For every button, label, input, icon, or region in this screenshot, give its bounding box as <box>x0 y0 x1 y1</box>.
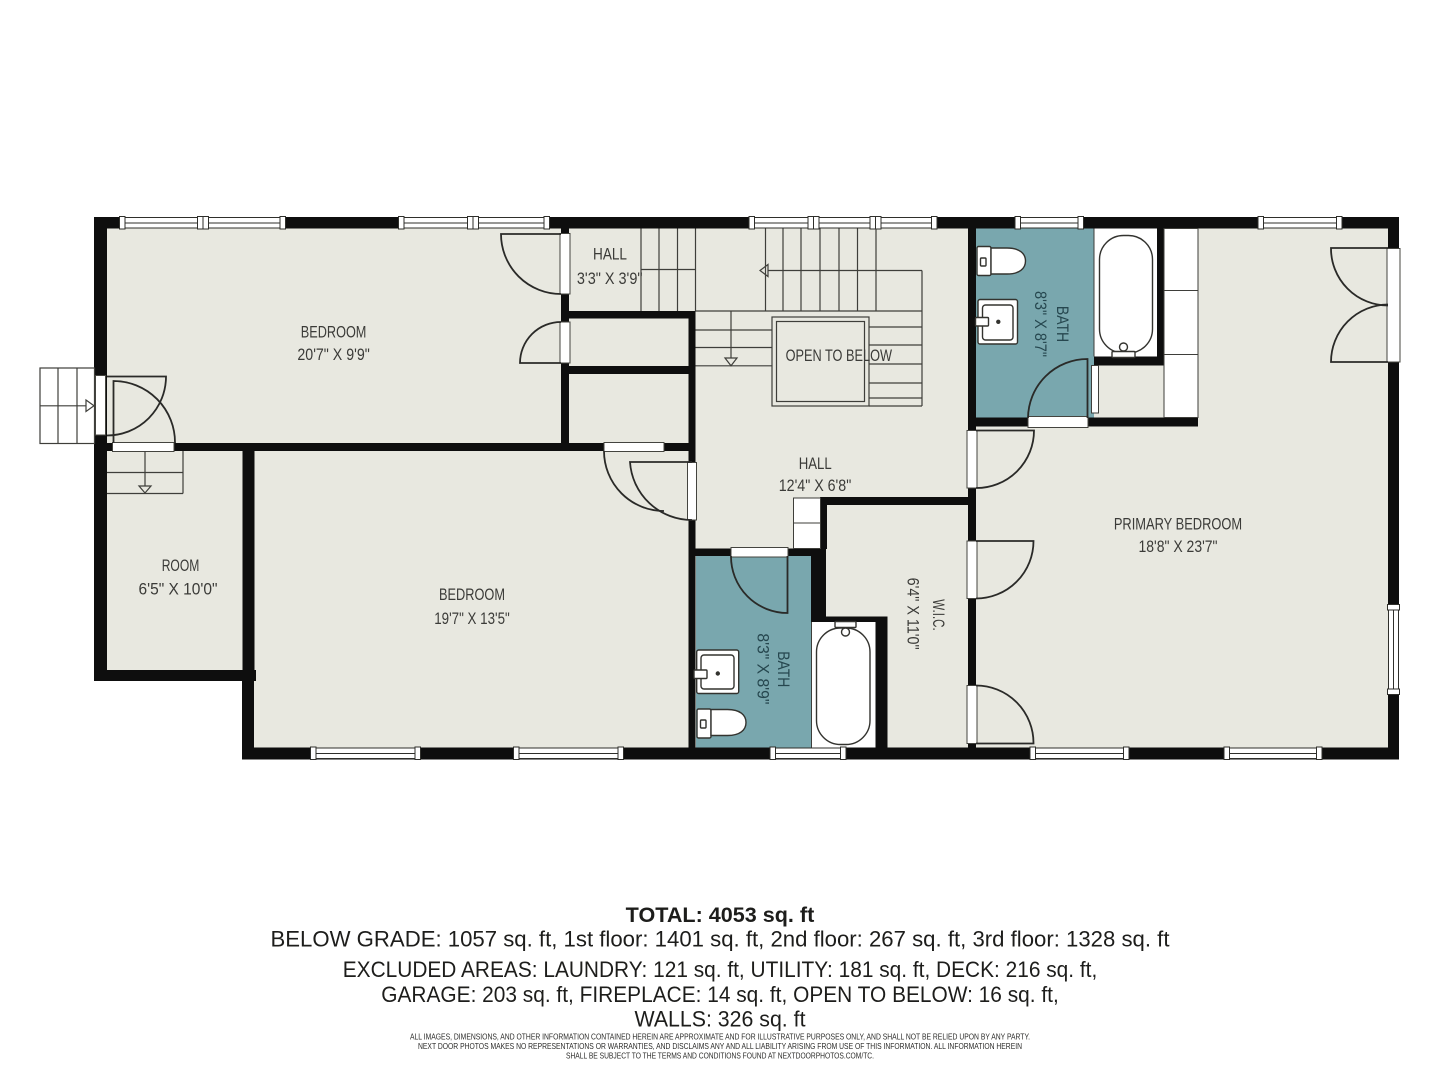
svg-text:W.I.C.: W.I.C. <box>929 599 947 631</box>
svg-text:20'7" X 9'9": 20'7" X 9'9" <box>297 346 370 364</box>
svg-text:WALLS: 326 sq. ft: WALLS: 326 sq. ft <box>635 1007 806 1032</box>
svg-text:BEDROOM: BEDROOM <box>439 586 505 604</box>
svg-text:PRIMARY BEDROOM: PRIMARY BEDROOM <box>1114 516 1242 534</box>
svg-text:8'3" X 8'7": 8'3" X 8'7" <box>1031 291 1049 357</box>
svg-text:BATH: BATH <box>1053 306 1071 342</box>
svg-text:BATH: BATH <box>774 651 792 687</box>
svg-text:12'4" X 6'8": 12'4" X 6'8" <box>779 477 852 495</box>
svg-text:ROOM: ROOM <box>162 557 200 575</box>
svg-text:NEXT DOOR PHOTOS MAKES NO REPR: NEXT DOOR PHOTOS MAKES NO REPRESENTATION… <box>418 1042 1022 1051</box>
svg-text:OPEN TO BELOW: OPEN TO BELOW <box>786 347 893 365</box>
svg-text:8'3" X 8'9": 8'3" X 8'9" <box>754 633 772 704</box>
svg-text:EXCLUDED AREAS: LAUNDRY: 121 s: EXCLUDED AREAS: LAUNDRY: 121 sq. ft, UTI… <box>343 957 1098 982</box>
svg-text:19'7" X 13'5": 19'7" X 13'5" <box>434 610 510 628</box>
svg-text:6'4" X 11'0": 6'4" X 11'0" <box>904 578 922 650</box>
svg-text:6'5" X 10'0": 6'5" X 10'0" <box>139 581 218 599</box>
svg-text:SHALL BE SUBJECT TO THE TERMS: SHALL BE SUBJECT TO THE TERMS AND CONDIT… <box>566 1052 874 1061</box>
svg-text:3'3" X 3'9": 3'3" X 3'9" <box>577 270 643 288</box>
svg-text:GARAGE: 203 sq. ft, FIREPLACE:: GARAGE: 203 sq. ft, FIREPLACE: 14 sq. ft… <box>381 982 1059 1007</box>
svg-text:BEDROOM: BEDROOM <box>301 324 367 342</box>
svg-text:ALL IMAGES, DIMENSIONS, AND OT: ALL IMAGES, DIMENSIONS, AND OTHER INFORM… <box>410 1033 1030 1042</box>
svg-text:TOTAL: 4053 sq. ft: TOTAL: 4053 sq. ft <box>626 903 815 927</box>
svg-text:18'8" X 23'7": 18'8" X 23'7" <box>1139 538 1218 556</box>
svg-text:HALL: HALL <box>593 246 627 264</box>
svg-text:BELOW GRADE: 1057 sq. ft, 1st: BELOW GRADE: 1057 sq. ft, 1st floor: 140… <box>271 927 1170 952</box>
svg-text:HALL: HALL <box>799 455 832 473</box>
